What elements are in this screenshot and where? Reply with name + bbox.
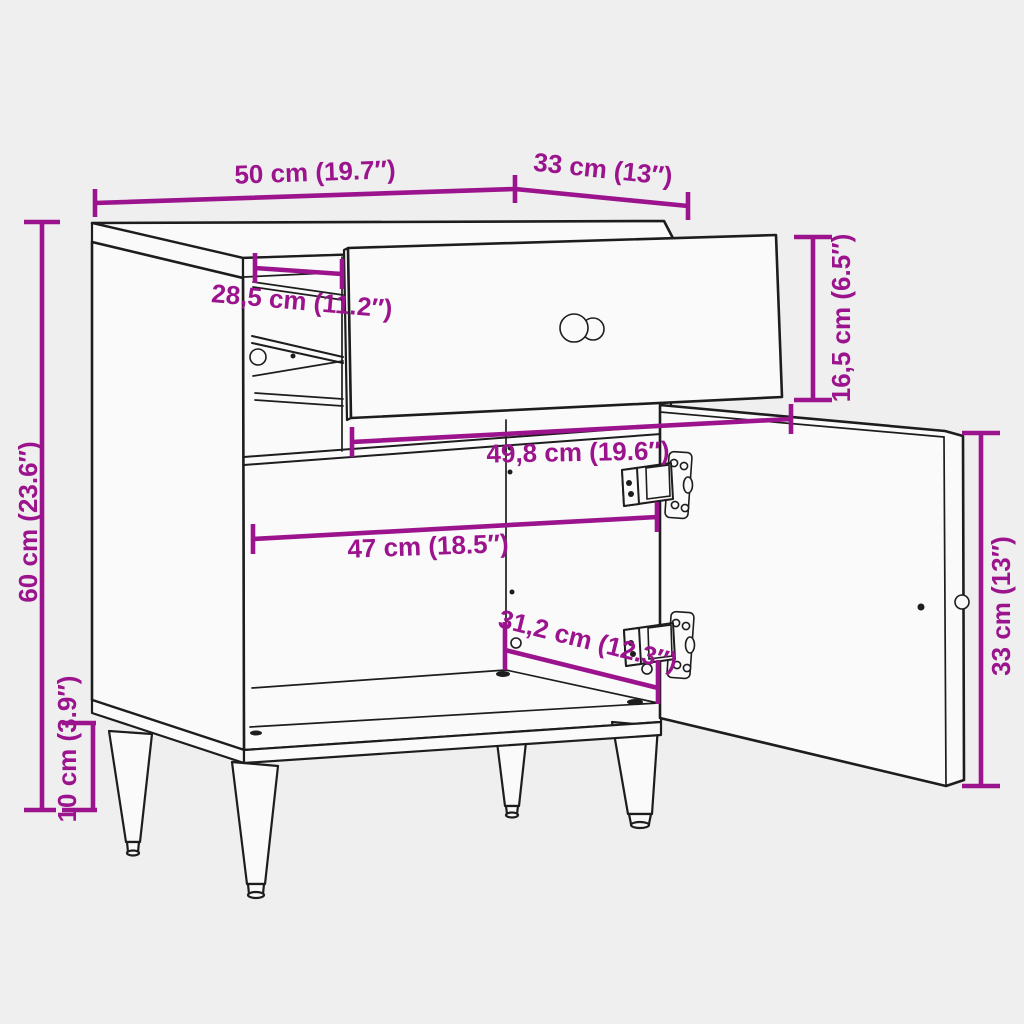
floor-hole	[250, 731, 262, 736]
dimension-door-height-label: 33 cm (13″)	[986, 536, 1016, 676]
dimension-top-width: 50 cm (19.7″)	[95, 154, 515, 217]
floor-hole	[496, 671, 510, 677]
leg-front-left	[232, 762, 278, 898]
dimension-top-depth-line	[515, 189, 688, 220]
cabinet-left-panel	[92, 242, 244, 750]
cam-screw	[511, 638, 521, 648]
dimension-drawer-width-label: 49,8 cm (19.6″)	[486, 435, 670, 468]
door-knob	[955, 595, 969, 609]
door-panel	[660, 405, 964, 786]
dimension-interior-width-label: 47 cm (18.5″)	[347, 528, 509, 564]
leg-back-right	[497, 742, 526, 818]
drawer	[344, 235, 782, 420]
dimension-drawer-front-height-label: 16,5 cm (6.5″)	[826, 234, 856, 403]
dimension-diagram: 50 cm (19.7″) 33 cm (13″) 28,5 cm (11.2″…	[0, 0, 1024, 1024]
dimension-door-height: 33 cm (13″)	[962, 433, 1016, 786]
door-knob-screw	[918, 604, 925, 611]
dimension-top-width-label: 50 cm (19.7″)	[234, 154, 396, 190]
dimension-leg-height: 10 cm (3.9″)	[52, 676, 97, 823]
shelf-pin-hole	[510, 590, 515, 595]
leg-back-left	[109, 731, 152, 856]
dimension-drawer-front-height: 16,5 cm (6.5″)	[794, 234, 856, 403]
drawer-knob	[560, 314, 604, 342]
dimension-top-depth-label: 33 cm (13″)	[532, 147, 674, 191]
dimension-leg-height-label: 10 cm (3.9″)	[52, 676, 82, 823]
slide-roller	[250, 349, 266, 365]
dimension-total-height-label: 60 cm (23.6″)	[13, 441, 43, 602]
shelf-pin-hole	[508, 470, 513, 475]
diagram-canvas: 50 cm (19.7″) 33 cm (13″) 28,5 cm (11.2″…	[0, 0, 1024, 1024]
dimension-top-depth: 33 cm (13″)	[515, 147, 688, 220]
floor-hole	[627, 699, 643, 705]
door	[622, 405, 969, 786]
